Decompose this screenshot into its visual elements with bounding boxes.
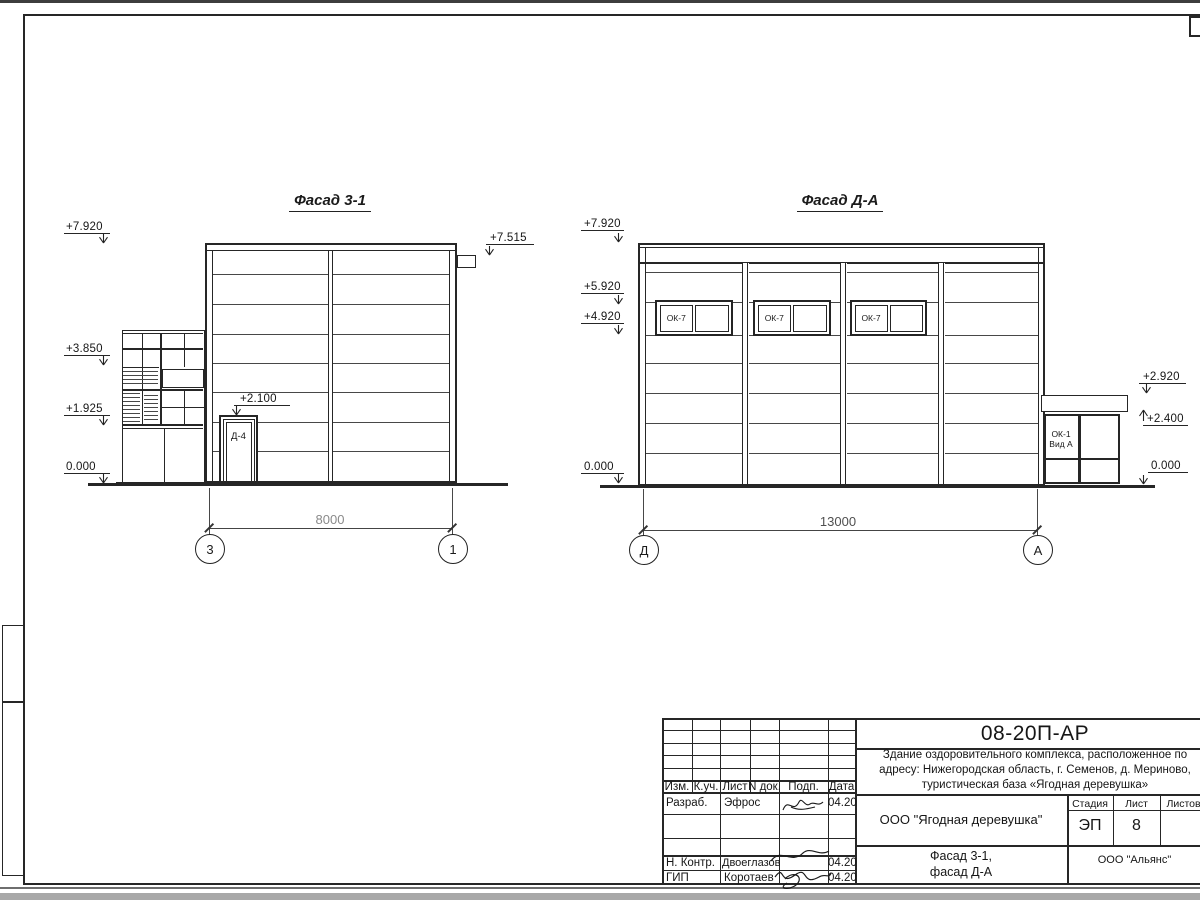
siding-line [333,451,449,452]
titleblock-row-line [663,814,855,815]
window-pane: ОК-7 [660,305,694,332]
louver-line [123,397,140,398]
frame-bottom [23,883,1200,885]
louver-line [123,401,140,402]
annex-mullion-heavy [1078,416,1081,482]
annex-transom [162,407,204,408]
louver-line [144,411,158,412]
elevation-mark-underline [581,323,624,324]
titleblock-project-line: адресу: Нижегородская область, г. Семено… [855,764,1200,776]
frame-top [23,14,1200,16]
titleblock-role: Разраб. [666,797,707,809]
titleblock-header-data: Дата [828,781,855,793]
dimension-line [643,530,1037,531]
axis-bubble-d: Д [629,535,659,565]
titleblock-divider [855,845,1200,847]
annex-transom [1046,458,1118,460]
drawing-sheet: Фасад 3-1 [0,0,1200,900]
elevation-arrow-icon [230,406,243,417]
panel-joint-line [742,263,743,484]
parapet-cap-line [207,250,455,251]
louver-line [123,405,140,406]
annex-ground-divider [164,429,165,483]
elevation-mark-underline [581,293,624,294]
annex-window-label: ОК-1Вид А [1044,429,1078,449]
axis-bubble-a: А [1023,535,1053,565]
elevation-arrow-icon [612,295,625,306]
axis-label: 3 [206,542,213,557]
elevation-arrow-icon [97,416,110,427]
screen-bottom-strip [0,893,1200,900]
panel-joint-line [332,250,333,483]
louver-line [144,415,158,416]
siding-line [333,392,449,393]
annex-mullion [142,390,143,424]
annex-floor-band [123,424,203,426]
axis-bubble-1: 1 [438,534,468,564]
siding-line [213,274,328,275]
frame-corner-box [1189,16,1200,37]
titleblock-border [662,718,1200,720]
siding-line [333,304,449,305]
parapet-cap-line [640,247,1043,248]
elevation-mark-label: 0.000 [584,461,614,473]
axis-label: 1 [449,542,456,557]
annex-mullion [142,333,143,390]
louver-line [123,417,140,418]
door-d4-label: Д-4 [219,431,258,442]
elevation-mark-label: +3.850 [66,343,103,355]
elevation-arrow-icon [612,233,625,244]
elevation-mark-underline [486,244,534,245]
elevation-arrow-icon [612,474,625,485]
signature [765,844,833,890]
elevation-mark-label: +5.920 [584,281,621,293]
annex-top-band [123,333,203,334]
paper-bottom-edge [0,887,1200,889]
corner-column-line [212,250,213,483]
panel-joint-line [747,263,748,484]
elevation-arrow-up-icon [1137,409,1150,422]
window-pane [793,305,827,332]
annex-roof-band [1041,395,1128,412]
louver-line [144,395,158,396]
siding-line [213,363,328,364]
louver-line [123,413,140,414]
elevation-mark-label: +7.920 [584,218,621,230]
louver-line [144,419,158,420]
titleblock-sheet-title: Фасад 3-1, [855,849,1067,863]
elevation-mark-label: +7.920 [66,221,103,233]
annex-glazing [1044,414,1120,484]
elevation-mark-label: +2.400 [1147,413,1184,425]
window-label: ОК-7 [765,313,784,323]
titleblock-header-izm: Изм. [662,781,692,793]
filing-mark-lower [2,702,24,876]
titleblock-role: Н. Контр. [666,857,715,869]
ground-line [88,483,508,486]
panel-joint-line [328,250,329,483]
elevation-arrow-icon [1137,475,1150,486]
titleblock-col-line [720,718,721,884]
elevation-arrow-icon [483,246,496,257]
panel-joint-line [943,263,944,484]
louver-line [123,393,140,394]
dimension-line [209,528,452,529]
elevation-mark-underline [581,230,624,231]
annex-transom [123,348,203,350]
siding-line [213,334,328,335]
dimension-value: 13000 [788,514,888,529]
axis-label: Д [640,543,649,558]
titleblock-sheets-label: Листов [1160,798,1200,810]
siding-line [333,422,449,423]
titleblock-header-kuch: К.уч. [692,781,720,793]
annex-floor-band [123,389,203,391]
louver-line [144,403,158,404]
elevation-arrow-icon [1140,384,1153,395]
siding-line [333,363,449,364]
titleblock-role: ГИП [666,872,689,884]
filing-mark-upper [2,625,24,702]
louver-line [123,375,158,376]
annex-mullion [184,333,185,367]
titleblock-sheet-label: Лист [1113,798,1160,810]
titleblock-header-podp: Подп. [779,781,828,793]
elevation-mark-label: +7.515 [490,232,527,244]
axis-label: А [1034,543,1043,558]
titleblock-doc-code: 08-20П-АР [855,722,1200,746]
titleblock-stage-value: ЭП [1067,817,1113,835]
facade-3-1-title: Фасад 3-1 [245,192,415,209]
window-pane [890,305,923,332]
elevation-mark-label: 0.000 [1151,460,1181,472]
titleblock-stage-label: Стадия [1067,798,1113,810]
titleblock-company: ООО "Ягодная деревушка" [857,812,1065,827]
louver-line [144,399,158,400]
titleblock-firm: ООО "Альянс" [1069,854,1200,866]
elevation-arrow-icon [612,325,625,336]
annex-transom [123,367,159,368]
window-pane: ОК-7 [855,305,888,332]
corner-column-line [449,250,450,483]
screen-top-strip [0,0,1200,3]
annex-window [162,369,204,388]
titleblock-sheet-value: 8 [1113,817,1160,835]
louver-line [123,371,158,372]
ground-line [600,485,1155,488]
titleblock-sheet-title: фасад Д-А [855,865,1067,879]
signature [781,795,825,815]
elevation-mark-underline [1148,472,1188,473]
facade-d-a-title: Фасад Д-А [755,192,925,209]
titleblock-project-line: Здание оздоровительного комплекса, распо… [855,749,1200,761]
titleblock-project-line: туристическая база «Ягодная деревушка» [855,779,1200,791]
titleblock-date: 04.20 [828,797,855,809]
titleblock-row-line [1067,810,1200,811]
elevation-mark-label: +2.920 [1143,371,1180,383]
panel-joint-line [938,263,939,484]
titleblock-row-line [663,838,855,839]
elevation-mark-label: 0.000 [66,461,96,473]
elevation-mark-label: +2.100 [240,393,277,405]
window-pane: ОК-7 [758,305,792,332]
annex-floor-band [123,428,203,429]
corner-column-line [1038,247,1039,484]
window-ok7: ОК-7 [850,300,927,336]
elevation-mark-label: +4.920 [584,311,621,323]
titleblock-name: Эфрос [724,797,760,809]
siding-line [333,274,449,275]
panel-joint-line [845,263,846,484]
louver-line [144,407,158,408]
elevation-arrow-icon [97,234,110,245]
louver-line [123,383,158,384]
siding-line [333,334,449,335]
corner-column-line [645,247,646,484]
window-pane [695,305,729,332]
elevation-arrow-icon [97,356,110,367]
louver-line [123,421,140,422]
dimension-value: 8000 [280,512,380,527]
louver-line [123,409,140,410]
window-label: ОК-7 [667,313,686,323]
window-label: ОК-7 [861,313,880,323]
axis-bubble-3: 3 [195,534,225,564]
titleblock-divider [855,794,1200,796]
panel-joint-line [840,263,841,484]
elevation-mark-underline [1143,425,1188,426]
elevation-arrow-icon [97,474,110,485]
titleblock-header-ndok: N док. [748,781,781,793]
louver-line [123,379,158,380]
siding-line [213,304,328,305]
roof-outlet-box [457,255,476,268]
elevation-mark-label: +1.925 [66,403,103,415]
titleblock-header-list: Лист [720,781,750,793]
window-ok7: ОК-7 [753,300,831,336]
window-ok7: ОК-7 [655,300,733,336]
